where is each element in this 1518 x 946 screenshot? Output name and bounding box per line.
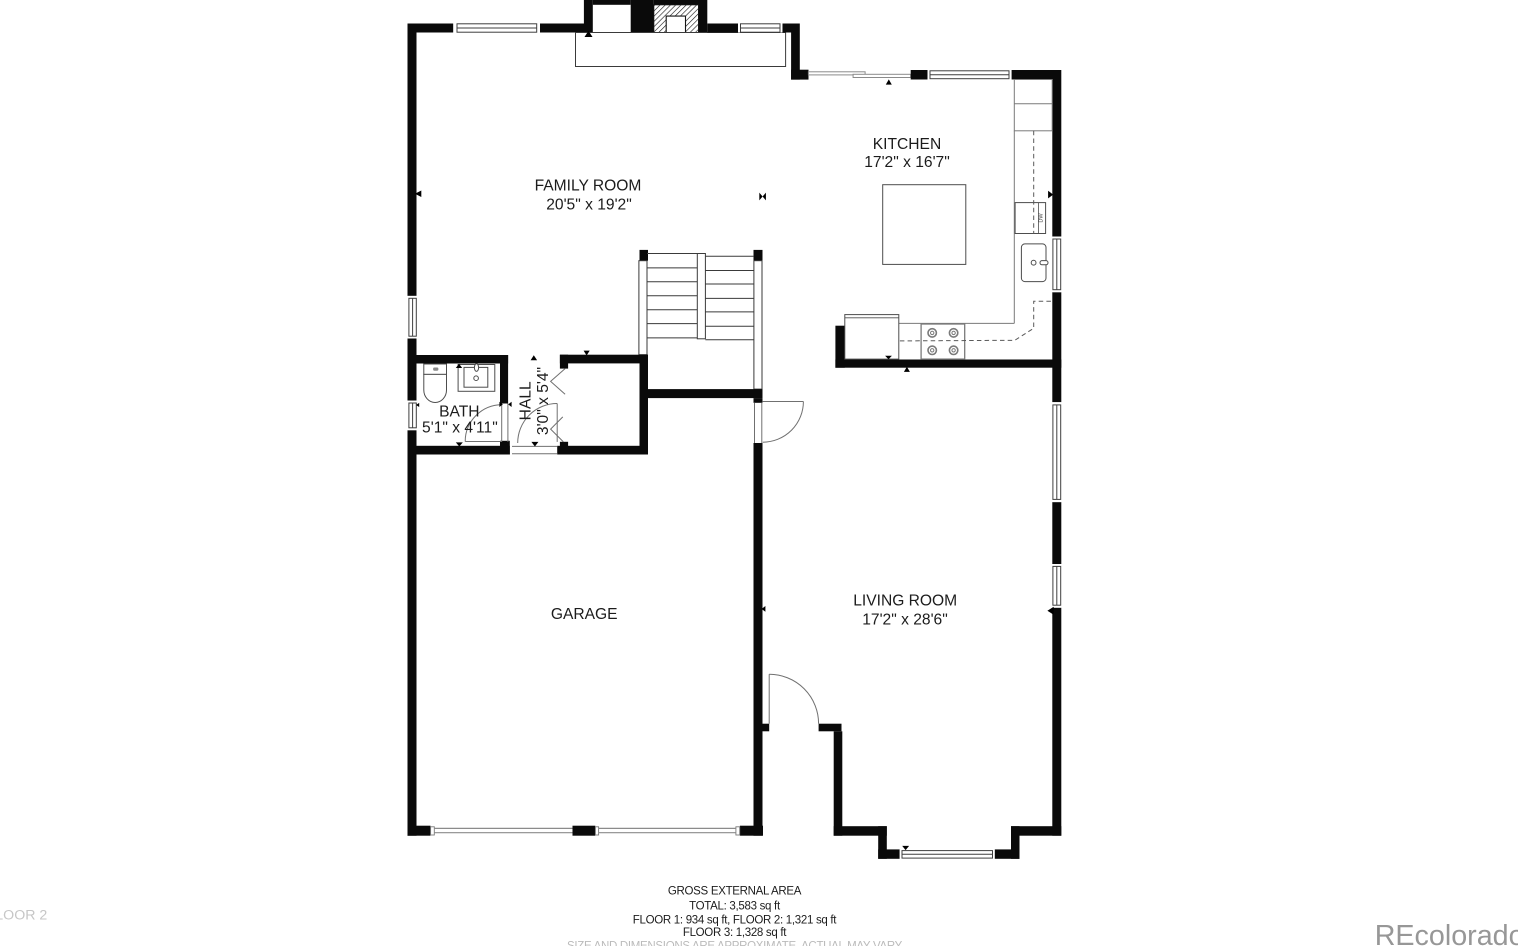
svg-text:LIVING ROOM: LIVING ROOM <box>853 592 957 609</box>
svg-text:5'1" x 4'11": 5'1" x 4'11" <box>422 420 498 437</box>
svg-text:FLOOR 3: 1,328 sq ft: FLOOR 3: 1,328 sq ft <box>683 927 787 939</box>
svg-text:3'0" x 5'4": 3'0" x 5'4" <box>535 367 552 435</box>
svg-text:17'2" x 16'7": 17'2" x 16'7" <box>864 154 950 171</box>
svg-text:20'5" x 19'2": 20'5" x 19'2" <box>546 196 632 213</box>
svg-text:TOTAL: 3,583 sq ft: TOTAL: 3,583 sq ft <box>689 901 781 913</box>
svg-text:FLOOR 1: 934 sq ft, FLOOR 2: 1: FLOOR 1: 934 sq ft, FLOOR 2: 1,321 sq ft <box>633 914 838 926</box>
svg-text:GROSS EXTERNAL AREA: GROSS EXTERNAL AREA <box>668 886 802 898</box>
svg-text:GARAGE: GARAGE <box>551 606 618 623</box>
svg-text:REcolorado: REcolorado <box>1375 920 1518 946</box>
svg-text:FAMILY ROOM: FAMILY ROOM <box>535 177 642 194</box>
svg-text:FLOOR 2: FLOOR 2 <box>0 908 47 924</box>
svg-text:HALL: HALL <box>518 381 535 420</box>
svg-text:17'2" x 28'6": 17'2" x 28'6" <box>862 612 948 629</box>
svg-text:KITCHEN: KITCHEN <box>873 136 941 153</box>
svg-text:SIZE AND DIMENSIONS ARE APPROX: SIZE AND DIMENSIONS ARE APPROXIMATE, ACT… <box>567 941 903 946</box>
svg-text:DW: DW <box>1039 213 1045 223</box>
svg-text:BATH: BATH <box>439 403 479 420</box>
